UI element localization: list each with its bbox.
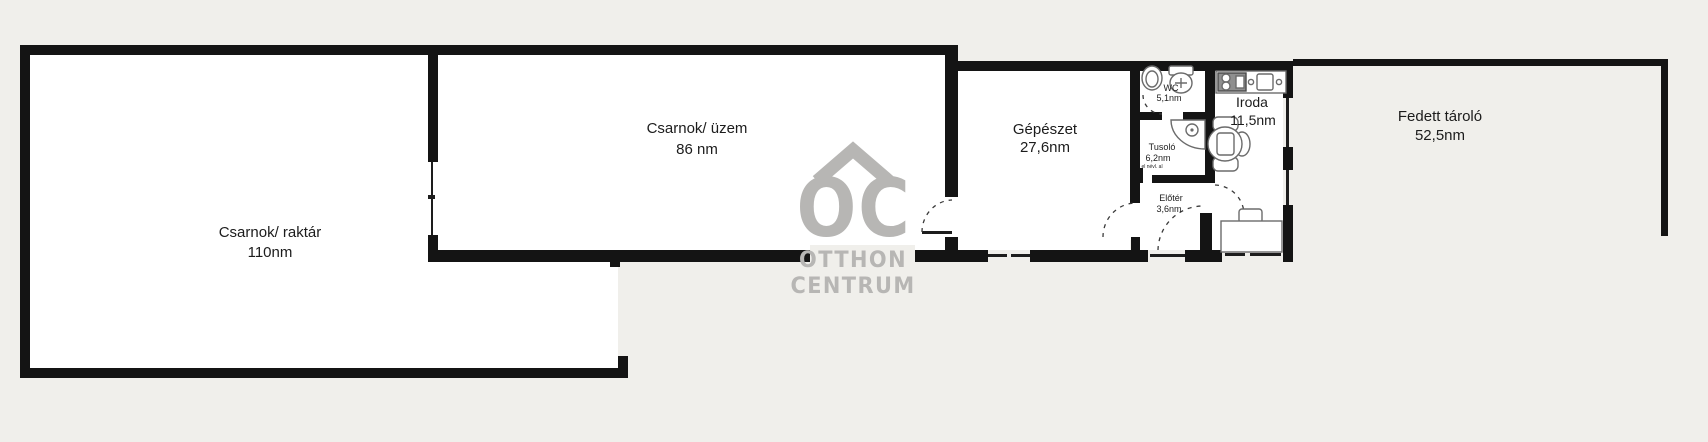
floor-plan-canvas: Csarnok/ raktár 110nm Csarnok/ üzem 86 n…	[0, 0, 1708, 442]
tusolo-area: 6,2nm	[1145, 153, 1170, 163]
room-floors	[30, 55, 1283, 368]
uzem-door-gap	[945, 195, 958, 237]
sink-icon	[1142, 66, 1162, 90]
wc-label: WC	[1164, 83, 1179, 93]
eloter-area: 3,6nm	[1156, 204, 1181, 214]
eloter-label: Előtér	[1159, 193, 1183, 203]
gepeszet-area: 27,6nm	[1020, 139, 1070, 156]
watermark-line2: CENTRUM	[790, 274, 915, 300]
tusolo-label: Tusoló	[1149, 142, 1176, 152]
watermark: OC OTTHON CENTRUM	[790, 150, 915, 302]
uzem-label: Csarnok/ üzem	[647, 120, 748, 137]
tusolo-note: el névl. al	[1141, 164, 1162, 170]
uzem-area: 86 nm	[676, 141, 718, 158]
watermark-line1: OTTHON	[799, 248, 907, 274]
watermark-monogram: OC	[796, 162, 911, 255]
iroda-area: 11,5nm	[1230, 112, 1276, 128]
gepeszet-door-gap	[1130, 200, 1140, 240]
gepeszet-label: Gépészet	[1013, 121, 1078, 138]
raktar-label: Csarnok/ raktár	[219, 224, 322, 241]
raktar-area: 110nm	[248, 244, 293, 261]
floor-plan: Csarnok/ raktár 110nm Csarnok/ üzem 86 n…	[0, 0, 1708, 442]
wc-area: 5,1nm	[1156, 93, 1181, 103]
kitchenette-icon	[1216, 71, 1286, 93]
fedett-label: Fedett tároló	[1398, 108, 1482, 125]
fedett-area: 52,5nm	[1415, 127, 1465, 144]
iroda-label: Iroda	[1236, 94, 1268, 110]
gepeszet-floor	[958, 71, 1130, 250]
